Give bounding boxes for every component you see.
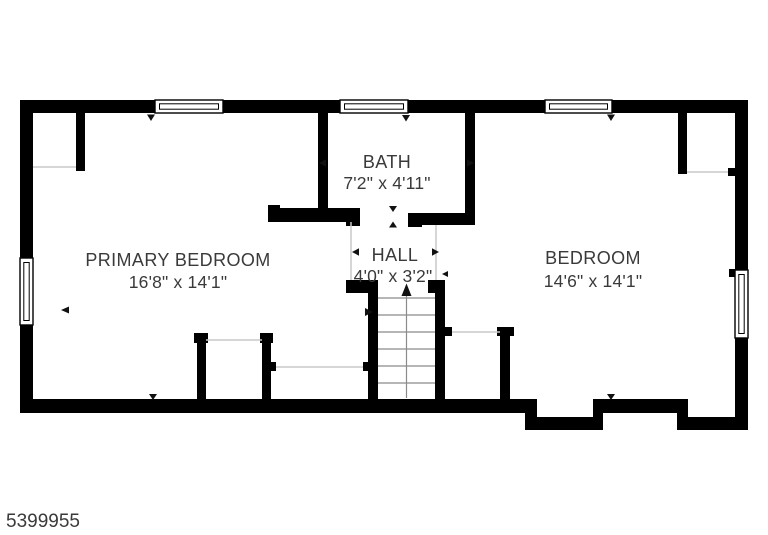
floor-plan-canvas: PRIMARY BEDROOM 16'8" x 14'1" BATH 7'2" … [0, 0, 768, 535]
wall-bottom-main [20, 399, 525, 413]
arrow-down-icon [607, 115, 615, 122]
closet-right-wall [500, 328, 510, 399]
closet-right-door-tick [445, 327, 452, 336]
room-dims-primary-bedroom: 16'8" x 14'1" [129, 272, 228, 292]
room-dims-hall: 4'0" x 3'2" [354, 266, 433, 286]
room-label-hall: HALL [372, 245, 419, 265]
window-top-3-icon [545, 100, 612, 113]
bath-left-wall [318, 113, 328, 221]
alcove2-bottom-wall [677, 417, 748, 430]
room-dims-bedroom: 14'6" x 14'1" [544, 271, 643, 291]
window-top-2-icon [340, 100, 408, 113]
floor-plan-page: PRIMARY BEDROOM 16'8" x 14'1" BATH 7'2" … [0, 0, 768, 535]
closet-bottom-stub2 [262, 335, 271, 399]
arrow-down-icon [147, 115, 155, 122]
closet-bottom-stub1 [197, 335, 206, 399]
stair-left-wall [368, 280, 378, 399]
room-labels: PRIMARY BEDROOM 16'8" x 14'1" BATH 7'2" … [85, 152, 642, 292]
closet-topleft-wall [76, 113, 85, 171]
arrow-down-icon [402, 115, 410, 122]
bath-door-left-jamb [346, 212, 360, 226]
closet-topleft-door-tick [28, 161, 33, 169]
window-left-icon [20, 258, 33, 325]
wall-bottom-mid [593, 399, 677, 413]
staircase [378, 284, 435, 399]
room-label-bath: BATH [363, 152, 411, 172]
alcove1-bottom-wall [525, 417, 603, 430]
closet-bottom2-door-tick-right [363, 362, 368, 371]
arrow-up-icon [389, 222, 397, 228]
stair-right-wall [435, 280, 445, 399]
closet-bottom2-door-tick-left [271, 362, 276, 371]
listing-id-watermark: 5399955 [6, 511, 80, 532]
arrow-down-icon [389, 206, 397, 212]
arrow-left-icon [352, 248, 359, 255]
bath-right-wall [465, 113, 475, 225]
bath-bottom-wall-right [408, 213, 475, 225]
wall-right [735, 100, 748, 417]
room-label-bedroom: BEDROOM [545, 248, 641, 268]
window-top-1-icon [155, 100, 223, 113]
room-label-primary-bedroom: PRIMARY BEDROOM [85, 250, 270, 270]
closet-topright-wall [678, 113, 687, 174]
wall-left [20, 100, 33, 413]
room-dims-bath: 7'2" x 4'11" [343, 173, 430, 193]
arrow-left-icon [442, 271, 448, 277]
windows [20, 100, 748, 338]
right-window-tick [729, 269, 735, 277]
window-right-icon [735, 270, 748, 338]
closet-topright-door-tick [728, 168, 735, 176]
arrow-left-icon [61, 307, 69, 314]
